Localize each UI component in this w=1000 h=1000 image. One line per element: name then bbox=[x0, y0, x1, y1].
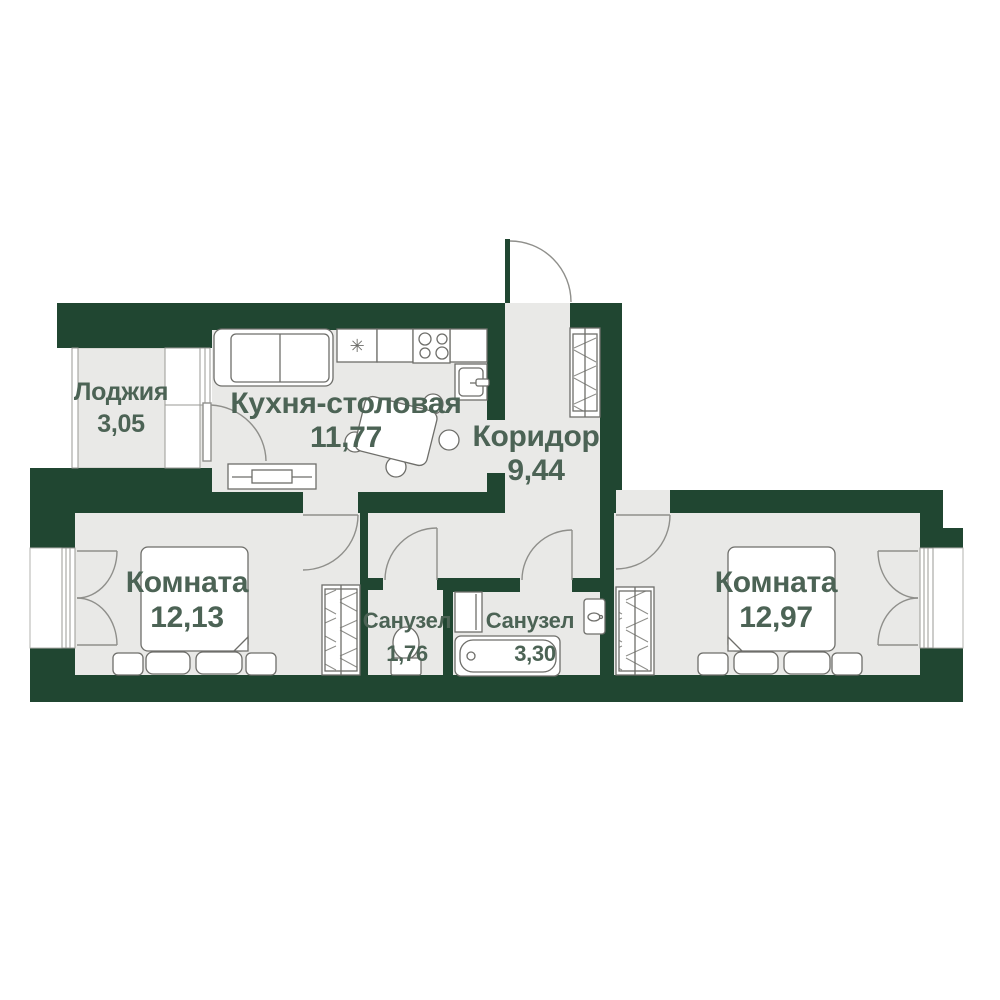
loggia-glazing bbox=[72, 348, 78, 468]
nightstand-icon bbox=[113, 653, 143, 675]
label-bedroom-right: Комната bbox=[715, 566, 838, 599]
window-frame-left bbox=[62, 548, 75, 648]
floor-bedroom-left-door-opening bbox=[303, 492, 358, 513]
pillow-icon bbox=[146, 652, 190, 674]
wall-segment bbox=[600, 513, 614, 675]
label-corridor: Коридор bbox=[473, 420, 600, 453]
room-floor-loggia bbox=[77, 348, 165, 468]
wardrobe-right-icon bbox=[616, 587, 654, 675]
label-loggia: Лоджия bbox=[74, 378, 168, 406]
label-loggia-area: 3,05 bbox=[97, 410, 145, 438]
pillow-icon bbox=[196, 652, 242, 674]
nightstand-icon bbox=[698, 653, 728, 675]
wardrobe-left-icon bbox=[322, 585, 360, 675]
label-bath1-area: 1,76 bbox=[386, 641, 428, 666]
tv-stand-icon bbox=[228, 464, 316, 489]
floor-bath2-door-opening bbox=[520, 578, 572, 592]
wall-segment bbox=[57, 330, 212, 348]
floor-plan-canvas: Лоджия 3,05 Кухня-столовая 11,77 Коридор… bbox=[0, 0, 1000, 1000]
wall-segment bbox=[600, 490, 616, 513]
loggia-door-leaf bbox=[203, 403, 211, 461]
window-frame-right bbox=[920, 548, 933, 648]
wall-segment bbox=[437, 578, 443, 590]
wall-segment bbox=[920, 490, 943, 548]
bath-sink-icon bbox=[584, 599, 605, 634]
label-bath2-area: 3,30 bbox=[514, 641, 556, 666]
label-kitchen: Кухня-столовая bbox=[230, 387, 461, 420]
wall-segment bbox=[572, 578, 600, 592]
wall-segment bbox=[75, 468, 212, 492]
wall-segment bbox=[487, 473, 505, 492]
wall-segment bbox=[487, 330, 505, 420]
wardrobe-corridor-icon bbox=[570, 328, 600, 417]
wall-segment bbox=[360, 513, 368, 675]
balcony-slab-right bbox=[933, 548, 963, 648]
nightstand-icon bbox=[246, 653, 276, 675]
sofa-icon bbox=[214, 329, 333, 386]
floor-bedroom-right-door-opening bbox=[616, 490, 670, 513]
label-kitchen-area: 11,77 bbox=[310, 421, 382, 454]
wall-segment bbox=[57, 303, 505, 330]
label-bath1: Санузел bbox=[363, 608, 451, 633]
label-bedroom-right-area: 12,97 bbox=[739, 601, 813, 634]
loggia-kitchen-sill bbox=[165, 348, 200, 468]
entrance-door-leaf bbox=[505, 239, 510, 303]
entrance-door-swing bbox=[510, 241, 571, 302]
label-bedroom-left: Комната bbox=[126, 566, 249, 599]
label-bedroom-left-area: 12,13 bbox=[150, 601, 224, 634]
sink-mark: ✳ bbox=[350, 336, 365, 356]
floor-bath1-door-opening bbox=[383, 578, 437, 590]
balcony-slab-left bbox=[30, 548, 62, 648]
wall-segment bbox=[453, 578, 520, 592]
label-bath2: Санузел bbox=[486, 608, 574, 633]
wall-segment bbox=[30, 675, 943, 702]
chair-icon bbox=[439, 430, 459, 450]
wall-segment bbox=[670, 490, 943, 513]
wall-segment bbox=[30, 468, 75, 548]
wall-segment bbox=[368, 578, 383, 590]
washing-machine-icon bbox=[455, 592, 482, 632]
stove-icon bbox=[413, 329, 450, 363]
label-corridor-area: 9,44 bbox=[507, 454, 565, 487]
wall-segment bbox=[943, 528, 963, 548]
wall-segment bbox=[358, 492, 505, 513]
wall-segment bbox=[75, 492, 303, 513]
floor-plan: Лоджия 3,05 Кухня-столовая 11,77 Коридор… bbox=[0, 0, 1000, 1000]
nightstand-icon bbox=[832, 653, 862, 675]
pillow-icon bbox=[734, 652, 778, 674]
wall-segment bbox=[600, 303, 622, 490]
pillow-icon bbox=[784, 652, 830, 674]
